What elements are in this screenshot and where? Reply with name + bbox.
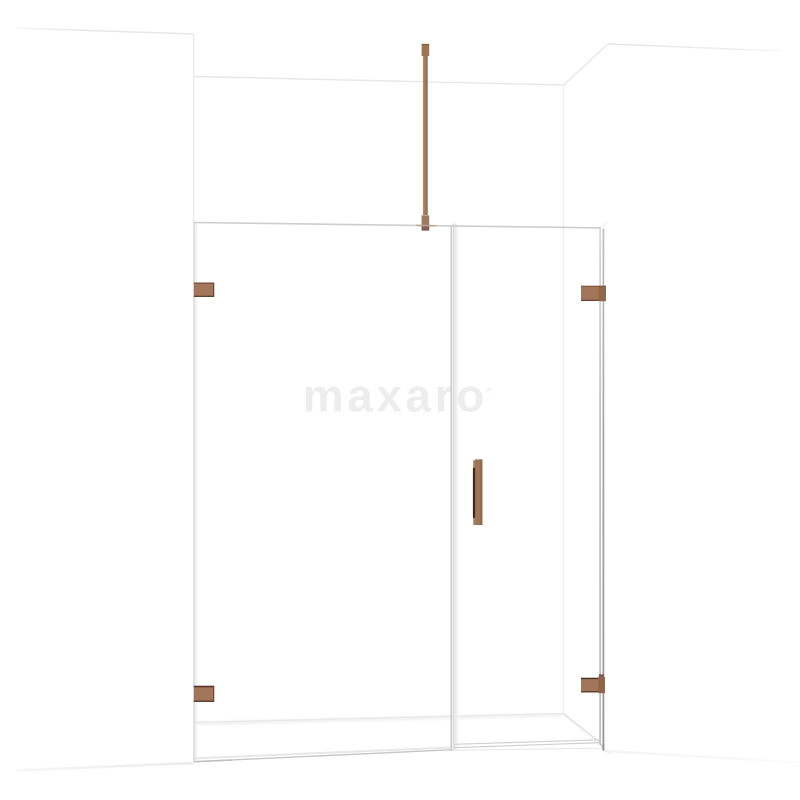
svg-text:maxaro: maxaro <box>303 370 488 422</box>
svg-text:®: ® <box>486 386 492 395</box>
